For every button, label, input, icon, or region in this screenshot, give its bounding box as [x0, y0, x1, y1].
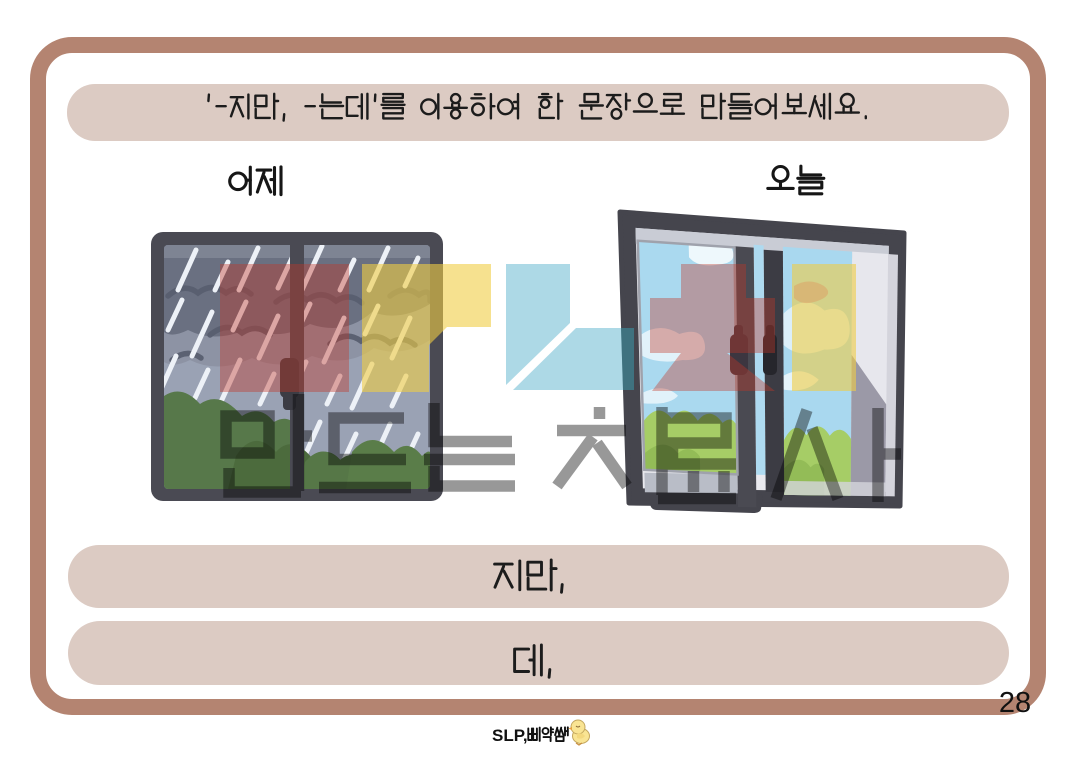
svg-text:SLP,: SLP,: [492, 726, 528, 745]
svg-text:28: 28: [999, 687, 1031, 719]
